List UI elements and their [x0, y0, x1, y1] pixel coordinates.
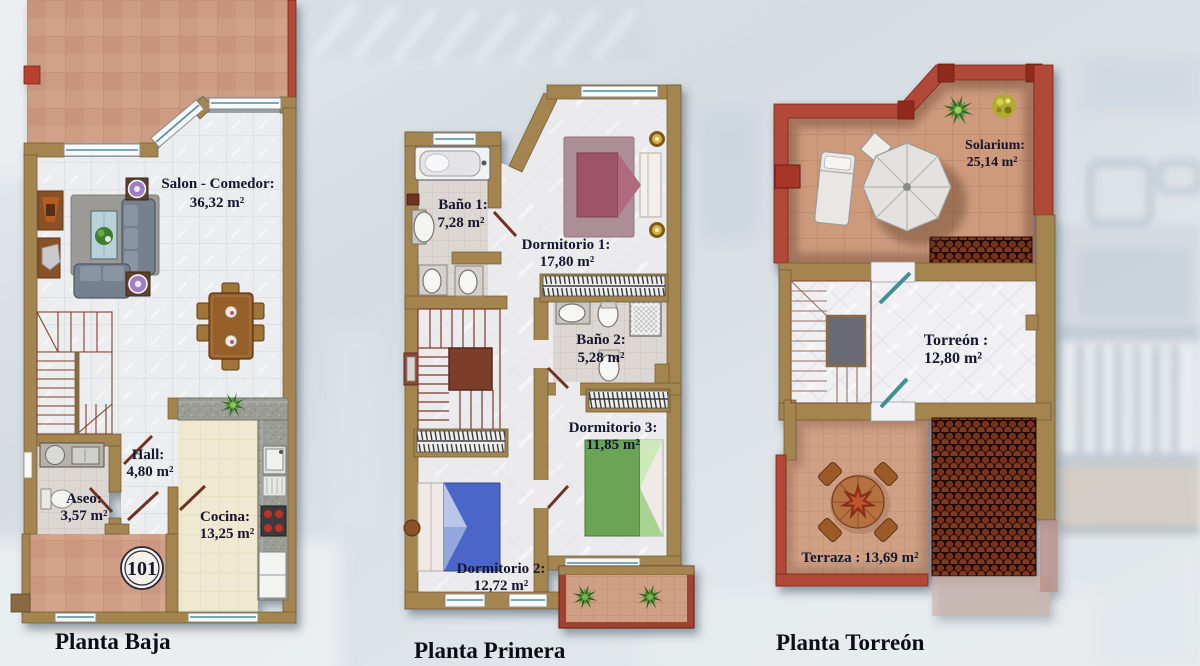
- svg-text:Torreón :: Torreón :: [924, 332, 988, 349]
- svg-text:Planta Primera: Planta Primera: [414, 638, 566, 663]
- svg-text:12,72 m²: 12,72 m²: [474, 578, 529, 594]
- svg-text:Salon - Comedor:: Salon - Comedor:: [161, 176, 274, 192]
- svg-text:Planta Torreón: Planta Torreón: [776, 630, 925, 655]
- svg-text:13,25 m²: 13,25 m²: [200, 526, 255, 542]
- svg-text:36,32 m²: 36,32 m²: [190, 195, 245, 211]
- svg-text:Baño 2:: Baño 2:: [576, 332, 626, 348]
- svg-text:Dormitorio 2:: Dormitorio 2:: [457, 561, 546, 577]
- svg-text:Aseo:: Aseo:: [66, 491, 102, 507]
- svg-text:101: 101: [127, 558, 157, 580]
- svg-text:Hall:: Hall:: [132, 447, 165, 463]
- svg-text:3,57 m²: 3,57 m²: [61, 508, 108, 524]
- svg-text:Planta Baja: Planta Baja: [55, 629, 171, 654]
- svg-text:7,28 m²: 7,28 m²: [438, 215, 485, 231]
- svg-text:Dormitorio 3:: Dormitorio 3:: [569, 420, 658, 436]
- svg-text:25,14 m²: 25,14 m²: [967, 155, 1018, 170]
- svg-text:Solarium:: Solarium:: [965, 138, 1025, 153]
- svg-text:Dormitorio 1:: Dormitorio 1:: [522, 237, 611, 253]
- svg-text:Baño 1:: Baño 1:: [438, 197, 488, 213]
- svg-text:12,80 m²: 12,80 m²: [924, 350, 982, 367]
- svg-text:5,28 m²: 5,28 m²: [578, 350, 625, 366]
- svg-text:11,85 m²: 11,85 m²: [586, 437, 640, 453]
- svg-text:4,80 m²: 4,80 m²: [127, 464, 174, 480]
- svg-text:Cocina:: Cocina:: [200, 509, 250, 525]
- svg-text:17,80 m²: 17,80 m²: [540, 254, 595, 270]
- svg-text:Terraza : 13,69 m²: Terraza : 13,69 m²: [801, 550, 919, 566]
